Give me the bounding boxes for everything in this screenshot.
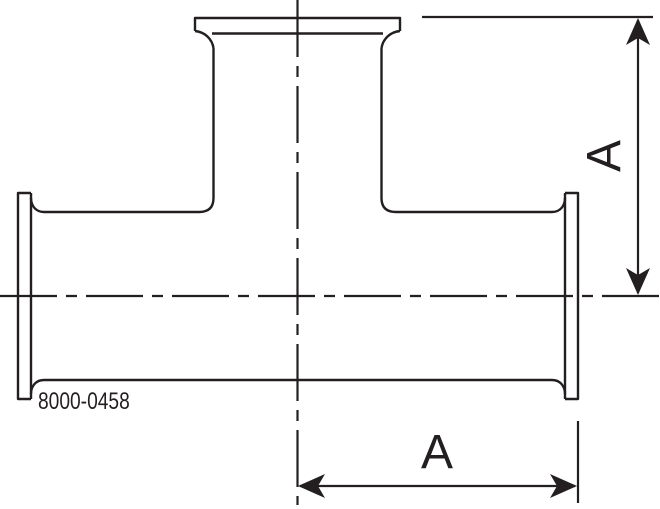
vertical-dimension: A <box>422 17 653 295</box>
horizontal-dimension-label: A <box>421 426 453 479</box>
centerlines <box>0 0 660 505</box>
part-number-label: 8000-0458 <box>38 387 130 415</box>
horizontal-dimension: A <box>298 421 578 503</box>
vertical-dimension-label: A <box>578 140 631 172</box>
technical-drawing-canvas: A A 8000-0458 <box>0 0 660 509</box>
tee-fitting-drawing: A A 8000-0458 <box>0 0 660 509</box>
